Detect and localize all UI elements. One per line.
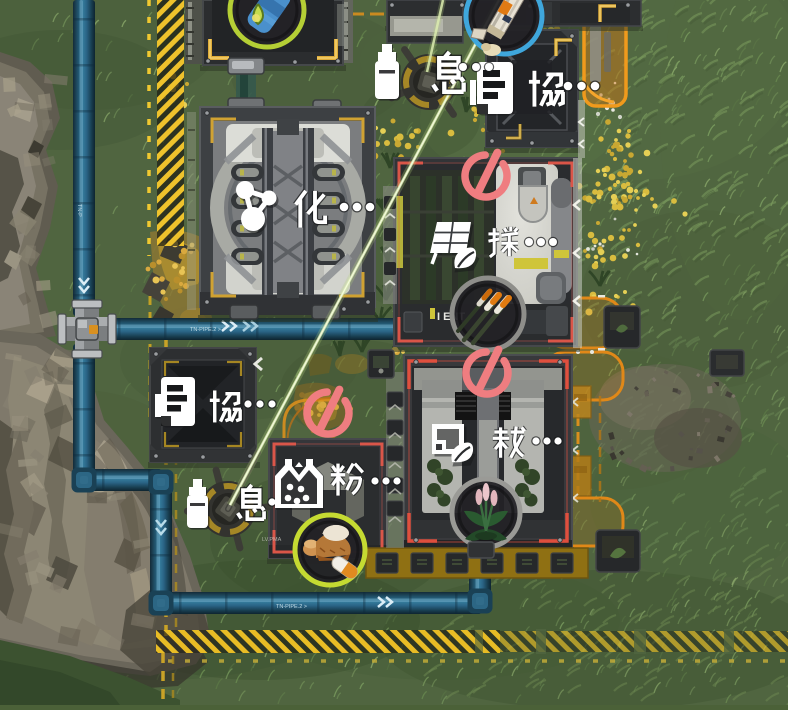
svg-text:TN-P: TN-P bbox=[76, 204, 82, 217]
svg-text:LV.PMA: LV.PMA bbox=[262, 537, 282, 543]
svg-text:TN-PIPE.2 >: TN-PIPE.2 > bbox=[190, 327, 221, 333]
svg-text:TN-PIPE.2 >: TN-PIPE.2 > bbox=[276, 604, 307, 610]
